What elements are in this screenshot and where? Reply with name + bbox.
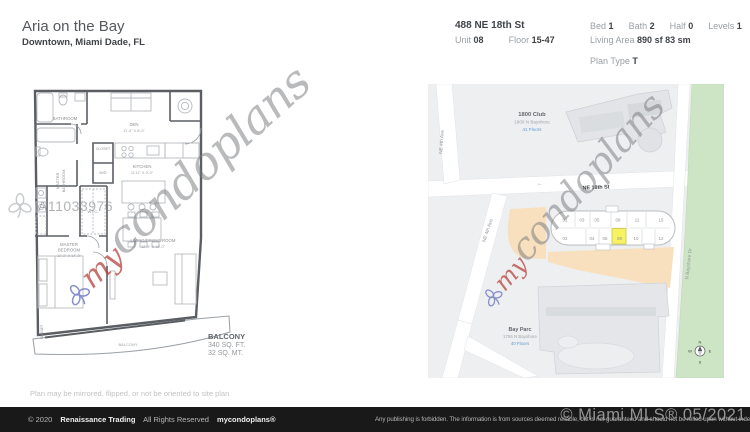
compass-n: N [699, 340, 702, 345]
unit-cell-01: 01 [563, 218, 568, 223]
room-label-living: LIVING/DINING ROOM [131, 238, 176, 243]
balcony-note-sqmt: 32 SQ. MT. [208, 350, 245, 359]
compass-w: W [688, 349, 692, 354]
one-way-arrow-icon: ← [537, 181, 543, 187]
room-label-master-bath-1: MASTER [55, 173, 60, 190]
floor-value: 15-47 [532, 35, 555, 45]
levels-value: 1 [737, 21, 742, 31]
unit-cell-15: 15 [659, 218, 664, 223]
site-map: 01 03 05 09 11 15 02 04 06 08 10 12 NE 4… [428, 84, 724, 378]
room-label-master-bedroom-2: BEDROOM [58, 248, 81, 253]
unit-label: Unit [455, 35, 471, 45]
label-1800club-name: 1800 Club [518, 112, 546, 118]
aria-site-footprint: 01 03 05 09 11 15 02 04 06 08 10 12 [551, 206, 675, 250]
room-label-wd: W/D [99, 171, 107, 175]
room-label-bathroom: BATHROOM [53, 116, 78, 121]
floor-plan-drawing: BATHROOM DEN 11'-5" X 8'-0" MASTER BATHR… [25, 86, 237, 382]
unit-cell-08: 08 [617, 236, 622, 241]
footer-disclaimer: Any publishing is forbidden. The informa… [375, 407, 750, 432]
plan-type-value: T [632, 56, 638, 66]
bath-value: 2 [650, 21, 655, 31]
unit-cell-11: 11 [635, 218, 640, 223]
bed-bath-row: Bed 1 Bath 2 Half 0 Levels 1 [590, 21, 742, 31]
plan-type-label: Plan Type [590, 56, 630, 66]
unit-cell-09: 09 [616, 218, 621, 223]
footer-rights: All Rights Reserved [143, 415, 209, 424]
footer-left: © 2020 Renaissance Trading All Rights Re… [28, 407, 282, 432]
bath-label: Bath [629, 21, 648, 31]
balcony-note-title: BALCONY [208, 333, 245, 342]
footer-brand: mycondoplans® [217, 415, 275, 424]
room-label-closet-left: CLOSET [40, 324, 44, 339]
bed-value: 1 [609, 21, 614, 31]
room-label-balcony: BALCONY [118, 342, 137, 347]
unit-cell-02: 02 [563, 236, 568, 241]
half-value: 0 [688, 21, 693, 31]
room-label-closet-center: CLOSET [96, 147, 111, 151]
condo-plan-sheet: Aria on the Bay Downtown, Miami Dade, FL… [0, 0, 750, 432]
room-label-master-bath-2: BATHROOM [61, 170, 66, 193]
room-label-kitchen: KITCHEN [133, 164, 152, 169]
location-subtitle: Downtown, Miami Dade, FL [22, 37, 145, 48]
half-label: Half [670, 21, 686, 31]
building-bay-parc [538, 283, 669, 374]
room-label-master-bedroom-1: MASTER [60, 242, 78, 247]
unit-cell-04: 04 [590, 236, 595, 241]
label-bayparc-address: 1756 N Bayshore [503, 334, 537, 339]
unit-cell-05: 05 [595, 218, 600, 223]
levels-label: Levels [708, 21, 734, 31]
room-dims-kitchen: 11'11" X 9'-0" [131, 171, 154, 175]
plan-type-row: Plan Type T [590, 56, 638, 66]
unit-cell-12: 12 [659, 236, 664, 241]
unit-floor-row: Unit 08 Floor 15-47 [455, 35, 555, 45]
street-label-ne18: NE 18th St [582, 184, 609, 191]
room-label-den: DEN [129, 122, 138, 127]
room-dims-den: 11'-5" X 8'-0" [123, 129, 145, 133]
balcony-area-note: BALCONY 340 SQ. FT. 32 SQ. MT. [208, 333, 245, 359]
footer-company: Renaissance Trading [60, 415, 135, 424]
unit-value: 08 [474, 35, 484, 45]
label-bayparc-name: Bay Parc [508, 327, 531, 333]
building-address: 488 NE 18th St [455, 20, 524, 31]
plan-disclaimer: Plan may be mirrored, flipped, or not be… [30, 389, 229, 398]
bed-label: Bed [590, 21, 606, 31]
living-area-value: 890 sf 83 sm [637, 35, 691, 45]
compass-s: S [699, 360, 702, 365]
footer-copyright: © 2020 [28, 415, 52, 424]
living-area-row: Living Area 890 sf 83 sm [590, 35, 691, 45]
floor-label: Floor [509, 35, 530, 45]
room-dims-master-bedroom: 11'-2" X 14'-3" [57, 254, 81, 258]
unit-cell-06: 06 [603, 236, 608, 241]
balcony-note-sqft: 340 SQ. FT. [208, 342, 245, 351]
footer-bar: © 2020 Renaissance Trading All Rights Re… [0, 407, 750, 432]
compass-e: E [709, 349, 712, 354]
room-label-wic: W.I.C. [88, 209, 99, 214]
room-dims-living: 12'-9" X 15'-0" [141, 245, 166, 249]
living-area-label: Living Area [590, 35, 635, 45]
label-1800club-address: 1800 N Bayshore [514, 120, 550, 125]
label-1800club-floors: 41 Floors [522, 127, 542, 132]
unit-cell-03: 03 [580, 218, 585, 223]
page-title: Aria on the Bay [22, 18, 125, 35]
unit-cell-10: 10 [634, 236, 639, 241]
label-bayparc-floors: 40 Floors [511, 341, 530, 346]
